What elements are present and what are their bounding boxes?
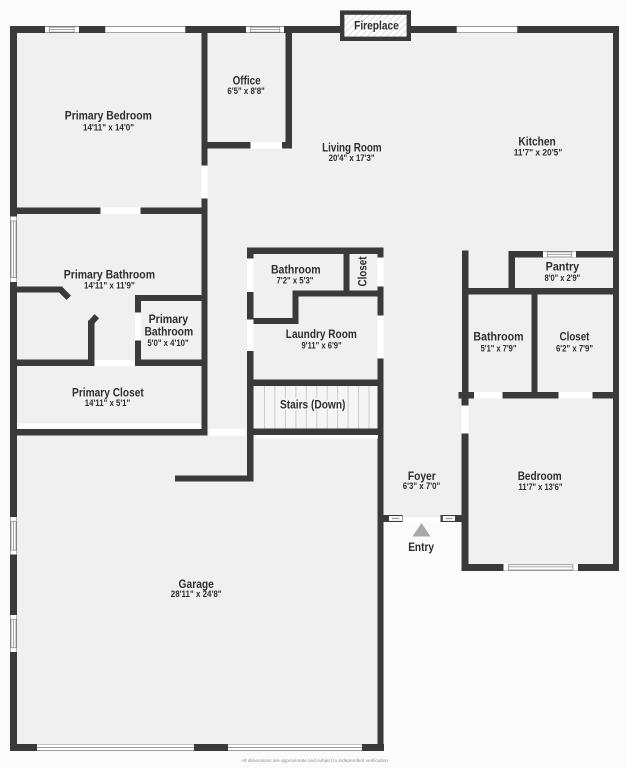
svg-text:Primary Bedroom: Primary Bedroom	[65, 108, 152, 122]
svg-text:5'0" x 4'10": 5'0" x 4'10"	[147, 338, 188, 348]
svg-text:Fireplace: Fireplace	[354, 19, 399, 33]
svg-text:Closet: Closet	[355, 257, 369, 287]
svg-text:Kitchen: Kitchen	[518, 134, 555, 148]
svg-text:All dimensions are approximate: All dimensions are approximate and subje…	[241, 758, 388, 763]
svg-text:Bathroom: Bathroom	[271, 263, 321, 277]
svg-text:Bathroom: Bathroom	[145, 325, 194, 339]
svg-text:Bathroom: Bathroom	[473, 330, 523, 344]
svg-text:5'1" x 7'9": 5'1" x 7'9"	[481, 343, 517, 353]
svg-text:28'11" x 24'8": 28'11" x 24'8"	[171, 589, 222, 599]
svg-text:Pantry: Pantry	[546, 259, 580, 273]
svg-text:20'4" x 17'3": 20'4" x 17'3"	[329, 153, 375, 163]
svg-text:Stairs (Down): Stairs (Down)	[280, 398, 345, 412]
svg-text:14'11" x 5'1": 14'11" x 5'1"	[85, 398, 131, 408]
svg-text:7'2" x 5'3": 7'2" x 5'3"	[277, 276, 314, 286]
svg-text:9'11" x 6'9": 9'11" x 6'9"	[302, 341, 342, 351]
svg-text:11'7" x 13'6": 11'7" x 13'6"	[519, 482, 563, 492]
svg-text:Closet: Closet	[560, 330, 590, 344]
svg-text:6'5" x 8'8": 6'5" x 8'8"	[227, 86, 264, 96]
svg-text:Laundry Room: Laundry Room	[286, 327, 357, 341]
svg-text:14'11" x 11'9": 14'11" x 11'9"	[84, 280, 135, 290]
svg-text:6'2" x 7'9": 6'2" x 7'9"	[556, 343, 593, 353]
svg-text:Entry: Entry	[408, 540, 434, 554]
svg-text:14'11" x 14'0": 14'11" x 14'0"	[83, 123, 134, 133]
svg-text:6'3" x 7'0": 6'3" x 7'0"	[403, 481, 440, 491]
svg-text:11'7" x 20'5": 11'7" x 20'5"	[514, 147, 563, 157]
svg-text:8'0" x 2'9": 8'0" x 2'9"	[545, 273, 581, 283]
